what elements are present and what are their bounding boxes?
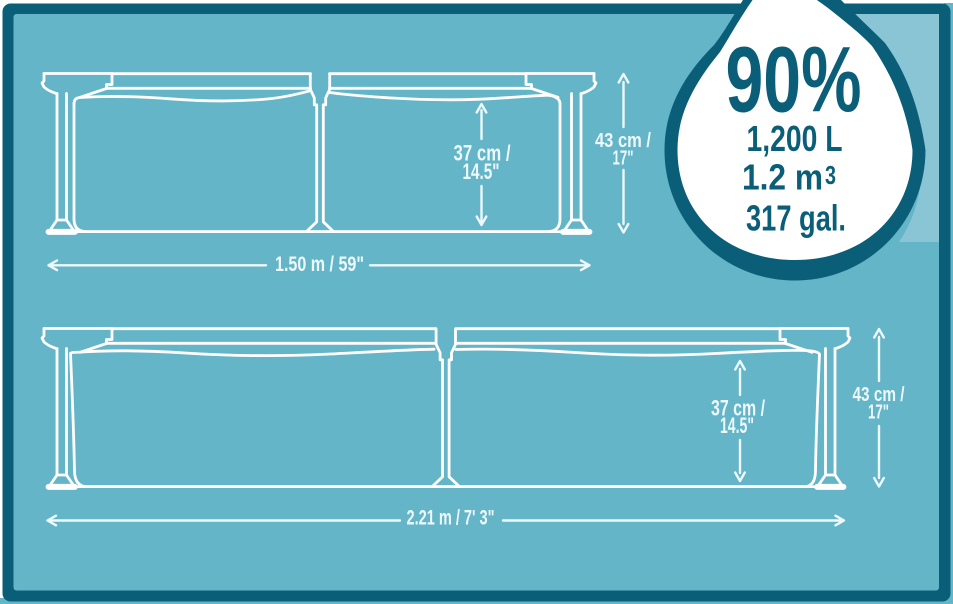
svg-text:17": 17" (613, 148, 634, 170)
svg-text:317 gal.: 317 gal. (746, 198, 846, 239)
svg-text:14.5": 14.5" (463, 159, 500, 184)
svg-text:14.5": 14.5" (720, 413, 754, 438)
svg-text:2.21 m / 7' 3": 2.21 m / 7' 3" (407, 507, 495, 530)
svg-text:1.2 m: 1.2 m (742, 156, 823, 197)
svg-text:1,200 L: 1,200 L (747, 118, 843, 159)
svg-text:3: 3 (825, 160, 836, 190)
svg-text:17": 17" (868, 402, 889, 424)
svg-text:90%: 90% (726, 28, 862, 132)
svg-text:1.50 m / 59": 1.50 m / 59" (275, 253, 364, 276)
